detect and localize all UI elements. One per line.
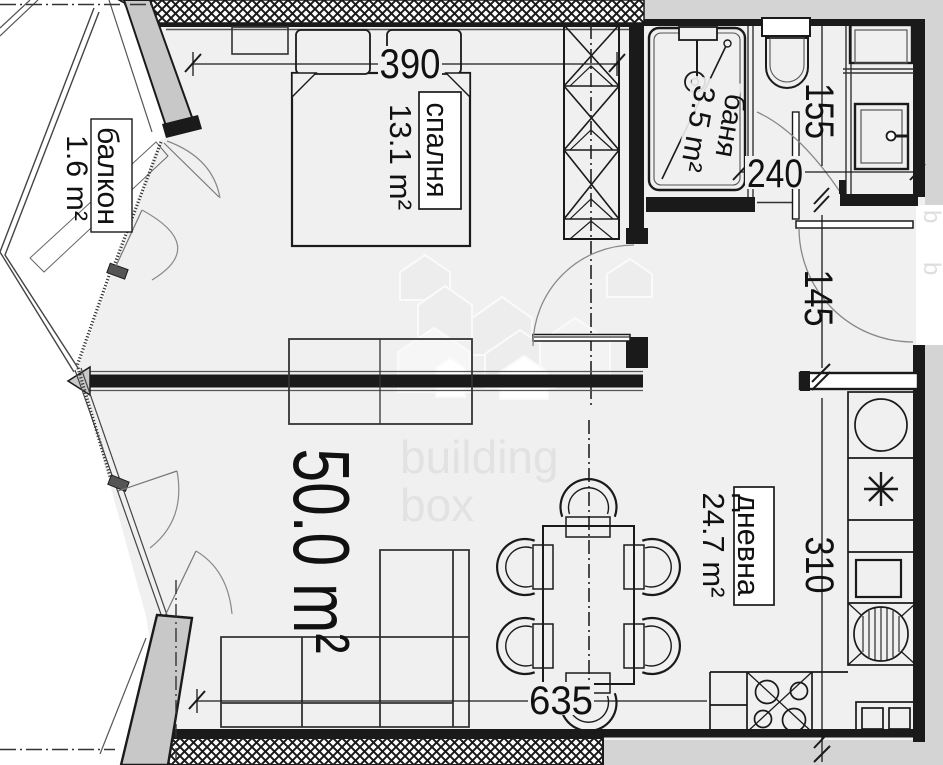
svg-text:b: b	[918, 262, 943, 275]
svg-text:13.1 m²: 13.1 m²	[383, 104, 418, 210]
svg-text:155: 155	[797, 83, 841, 139]
svg-text:50.0 m²: 50.0 m²	[277, 449, 366, 654]
svg-text:building: building	[400, 431, 559, 483]
svg-text:спалня: спалня	[420, 103, 455, 198]
svg-text:390: 390	[380, 40, 441, 87]
svg-text:145: 145	[796, 270, 840, 327]
svg-text:box: box	[400, 479, 474, 531]
svg-text:24.7 m²: 24.7 m²	[696, 493, 731, 598]
svg-text:b: b	[918, 210, 943, 223]
svg-text:240: 240	[747, 152, 803, 196]
svg-text:310: 310	[797, 537, 841, 594]
svg-text:дневна: дневна	[731, 494, 766, 597]
svg-text:1.6 m²: 1.6 m²	[60, 135, 93, 221]
svg-text:балкон: балкон	[91, 127, 124, 225]
svg-text:635: 635	[529, 679, 593, 723]
